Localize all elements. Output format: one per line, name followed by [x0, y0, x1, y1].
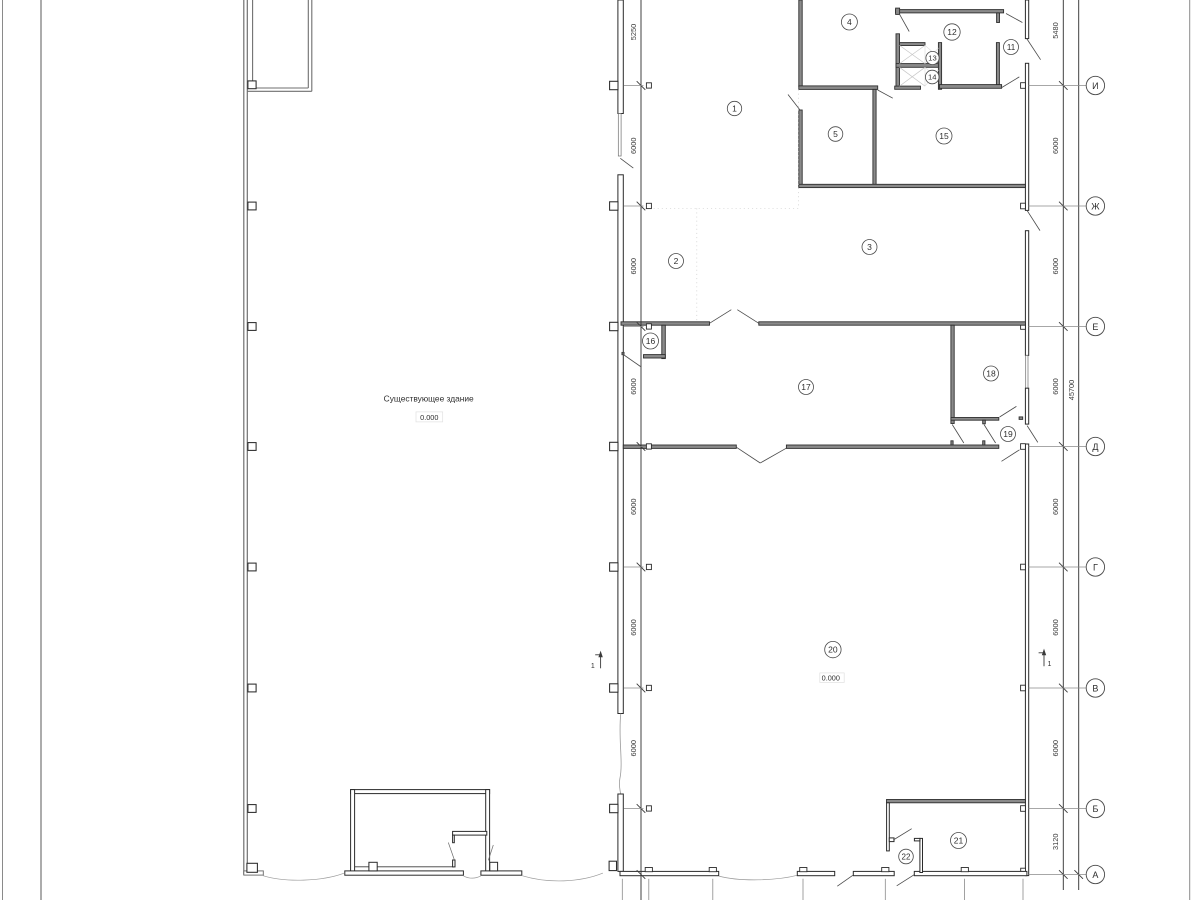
- svg-text:6000: 6000: [629, 619, 638, 635]
- svg-text:13: 13: [928, 54, 936, 63]
- svg-text:Б: Б: [1092, 804, 1098, 814]
- svg-text:17: 17: [801, 382, 811, 392]
- svg-text:20: 20: [828, 645, 838, 655]
- svg-text:6000: 6000: [1051, 499, 1060, 515]
- svg-text:15: 15: [939, 131, 949, 141]
- svg-text:5: 5: [833, 129, 838, 139]
- svg-text:6000: 6000: [629, 499, 638, 515]
- svg-text:5480: 5480: [1051, 22, 1060, 38]
- svg-text:2: 2: [674, 256, 679, 266]
- svg-text:Ж: Ж: [1091, 202, 1100, 212]
- svg-text:И: И: [1092, 81, 1098, 91]
- svg-text:16: 16: [646, 336, 656, 346]
- svg-text:19: 19: [1003, 429, 1013, 439]
- svg-text:11: 11: [1007, 43, 1016, 52]
- svg-text:1: 1: [732, 104, 737, 114]
- svg-text:6000: 6000: [1051, 378, 1060, 394]
- svg-text:6000: 6000: [629, 740, 638, 756]
- svg-text:0.000: 0.000: [822, 674, 840, 683]
- svg-text:22: 22: [902, 852, 911, 861]
- svg-text:Д: Д: [1092, 442, 1098, 452]
- svg-text:14: 14: [928, 73, 936, 82]
- svg-text:4: 4: [847, 17, 852, 27]
- svg-text:Е: Е: [1092, 322, 1098, 332]
- svg-text:6000: 6000: [1051, 619, 1060, 635]
- svg-text:3: 3: [867, 242, 872, 252]
- svg-text:Существующее здание: Существующее здание: [384, 394, 474, 404]
- svg-text:18: 18: [986, 369, 996, 379]
- svg-text:Г: Г: [1093, 563, 1098, 573]
- svg-text:12: 12: [947, 27, 957, 37]
- svg-text:А: А: [1092, 870, 1098, 880]
- svg-text:1: 1: [1047, 661, 1051, 668]
- svg-text:В: В: [1092, 684, 1098, 694]
- svg-text:6000: 6000: [1051, 740, 1060, 756]
- svg-text:6000: 6000: [1051, 258, 1060, 274]
- svg-text:6000: 6000: [629, 378, 638, 394]
- svg-text:6000: 6000: [1051, 138, 1060, 154]
- svg-text:6000: 6000: [629, 258, 638, 274]
- svg-text:3120: 3120: [1051, 833, 1060, 849]
- svg-text:0.000: 0.000: [420, 413, 438, 422]
- svg-text:21: 21: [954, 836, 964, 846]
- svg-text:45700: 45700: [1067, 380, 1076, 401]
- svg-text:6000: 6000: [629, 138, 638, 154]
- svg-text:1: 1: [591, 663, 595, 670]
- svg-text:5250: 5250: [629, 24, 638, 40]
